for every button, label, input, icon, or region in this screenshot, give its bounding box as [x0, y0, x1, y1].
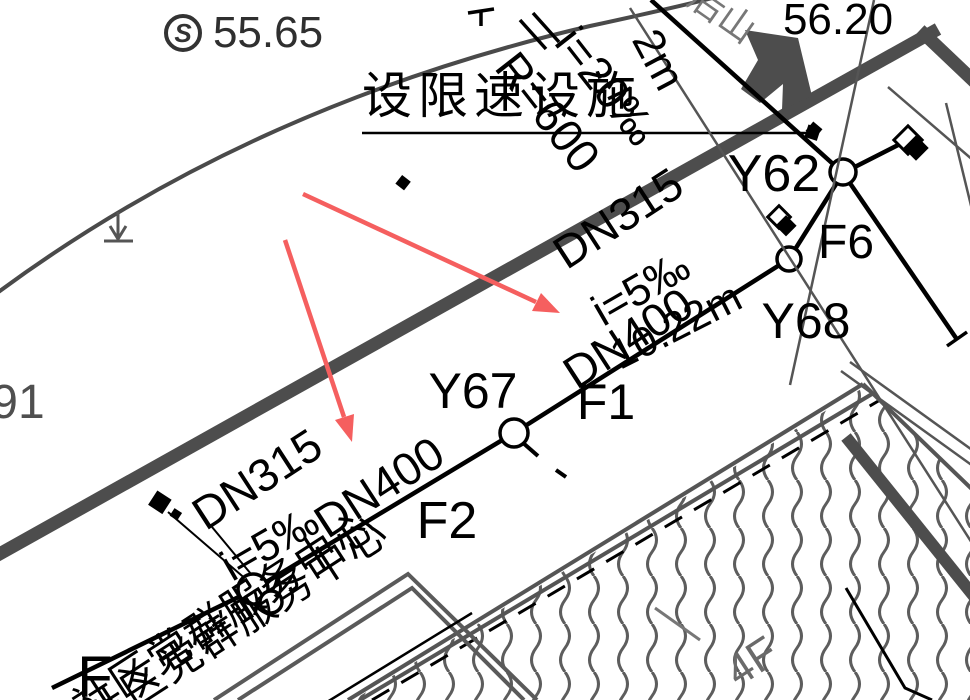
road-curve-edge [0, 0, 720, 302]
rain-inlet-square [148, 491, 172, 515]
spot-elevation-2: 56.20 [783, 0, 893, 42]
point-mark [395, 175, 410, 190]
cutoff-text-fragments [468, 9, 559, 49]
node-label-y67: Y67 [429, 366, 518, 416]
benchmark-symbol: S [164, 14, 202, 52]
node-label-f6: F6 [818, 219, 874, 267]
manhole-y67 [500, 419, 528, 447]
road-edge-line-2 [946, 103, 970, 300]
node-label-y68: Y68 [762, 296, 851, 346]
node-label-y62: Y62 [728, 148, 821, 200]
rain-inlet-stub [170, 508, 182, 520]
spot-elevation-1: 55.65 [213, 11, 323, 55]
benchmark-letter: S [174, 18, 191, 48]
station-label: 91 [0, 379, 45, 427]
pipe-end-tick [947, 332, 967, 346]
cad-drainage-plan: S 55.65 56.20 设限速设施 R=600 i=20‰ 2m 后山 DN… [0, 0, 970, 700]
node-label-f1: F1 [577, 377, 635, 427]
node-label-f2: F2 [417, 495, 478, 547]
outfall-symbol [894, 126, 929, 161]
road-band-northeast [920, 30, 970, 125]
small-dash-mark [556, 470, 566, 477]
